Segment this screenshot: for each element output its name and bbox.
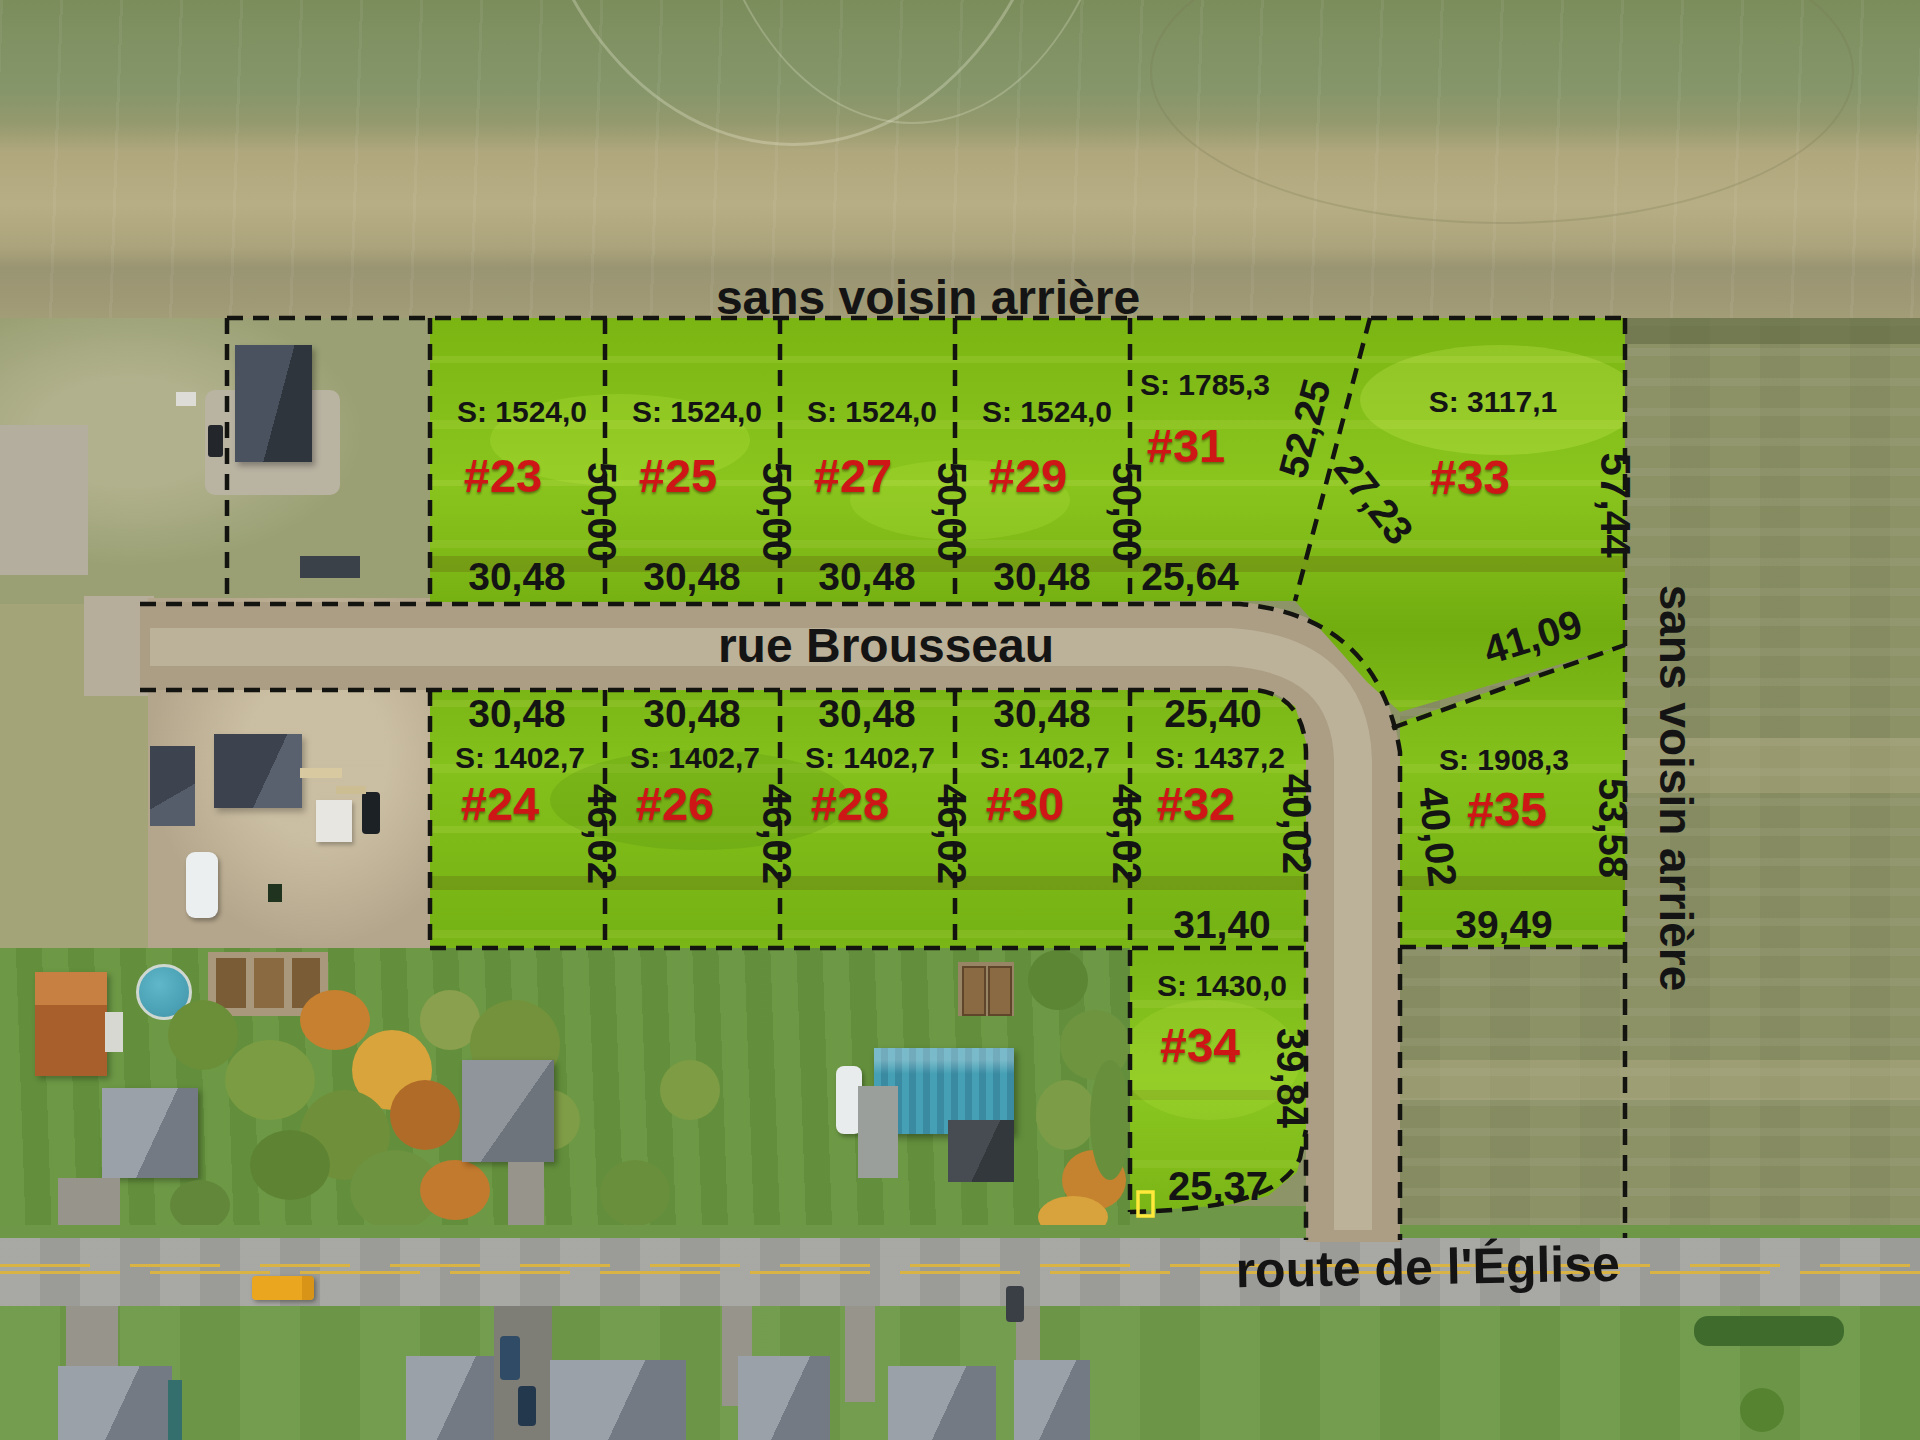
lot-32-depth-dim: 40,02 [1275, 774, 1319, 874]
lot-23-frontage-dim: 30,48 [468, 555, 566, 598]
lot-26-number: #26 [636, 777, 714, 830]
lot-27-depth-dim: 50,00 [930, 462, 974, 562]
lot-24-area: S: 1402,7 [455, 741, 585, 774]
lot-26-area: S: 1402,7 [630, 741, 760, 774]
no-rear-neighbor-label-right: sans voisin arrière [1650, 585, 1702, 992]
lot-32-rear-dim: 31,40 [1173, 903, 1271, 946]
lot-33-side-dim: 57,44 [1592, 452, 1639, 558]
street-name-rue-brousseau: rue Brousseau [718, 619, 1054, 672]
lot-33-number: #33 [1430, 451, 1510, 504]
lot-28-frontage-dim: 30,48 [818, 692, 916, 735]
no-rear-neighbor-label-top: sans voisin arrière [716, 271, 1140, 324]
lot-29-area: S: 1524,0 [982, 395, 1112, 428]
aerial-subdivision-photo: sans voisin arrière rue Brousseau route … [0, 0, 1920, 1440]
lot-34-frontage-dim: 25,37 [1168, 1164, 1268, 1208]
lot-34-depth-dim: 39,84 [1269, 1028, 1313, 1129]
lot-30-area: S: 1402,7 [980, 741, 1110, 774]
lot-35-area: S: 1908,3 [1439, 743, 1569, 776]
lot-35-right-dim: 53,58 [1591, 778, 1635, 878]
lot-31-area: S: 1785,3 [1140, 368, 1270, 401]
lot-25-area: S: 1524,0 [632, 395, 762, 428]
lot-32-frontage-dim: 25,40 [1164, 692, 1262, 735]
lot-26-frontage-dim: 30,48 [643, 692, 741, 735]
lot-24-number: #24 [461, 777, 539, 830]
lot-27-number: #27 [814, 449, 892, 502]
lot-23-area: S: 1524,0 [457, 395, 587, 428]
lot-34-number: #34 [1160, 1019, 1240, 1072]
lot-24-depth-dim: 46,02 [580, 784, 624, 884]
lot-27-frontage-dim: 30,48 [818, 555, 916, 598]
lot-33-area: S: 3117,1 [1429, 385, 1557, 418]
lot-35-number: #35 [1467, 783, 1547, 836]
lot-30-number: #30 [986, 777, 1064, 830]
lot-25-frontage-dim: 30,48 [643, 555, 741, 598]
lot-23-depth-dim: 50,00 [580, 462, 624, 562]
lot-32-area: S: 1437,2 [1155, 741, 1285, 774]
lot-31-number: #31 [1147, 419, 1225, 472]
lot-29-number: #29 [989, 449, 1067, 502]
lot-31-frontage-dim: 25,64 [1141, 555, 1239, 598]
lot-27-area: S: 1524,0 [807, 395, 937, 428]
lot-29-depth-dim: 50,00 [1105, 462, 1149, 562]
lot-28-depth-dim: 46,02 [930, 784, 974, 884]
lot-34-area: S: 1430,0 [1157, 969, 1287, 1002]
lot-32-number: #32 [1157, 777, 1235, 830]
lot-28-number: #28 [811, 777, 889, 830]
subdivision-plan-overlay: sans voisin arrière rue Brousseau route … [0, 0, 1920, 1440]
lot-25-number: #25 [639, 449, 717, 502]
lot-30-depth-dim: 46,02 [1105, 784, 1149, 884]
lot-35-front-dim: 39,49 [1455, 903, 1553, 946]
street-name-route-eglise: route de l'Église [1235, 1236, 1620, 1299]
lot-24-frontage-dim: 30,48 [468, 692, 566, 735]
lot-29-frontage-dim: 30,48 [993, 555, 1091, 598]
lot-23-number: #23 [464, 449, 542, 502]
lot-26-depth-dim: 46,02 [755, 784, 799, 884]
lot-28-area: S: 1402,7 [805, 741, 935, 774]
lot-25-depth-dim: 50,00 [755, 462, 799, 562]
lot-30-frontage-dim: 30,48 [993, 692, 1091, 735]
